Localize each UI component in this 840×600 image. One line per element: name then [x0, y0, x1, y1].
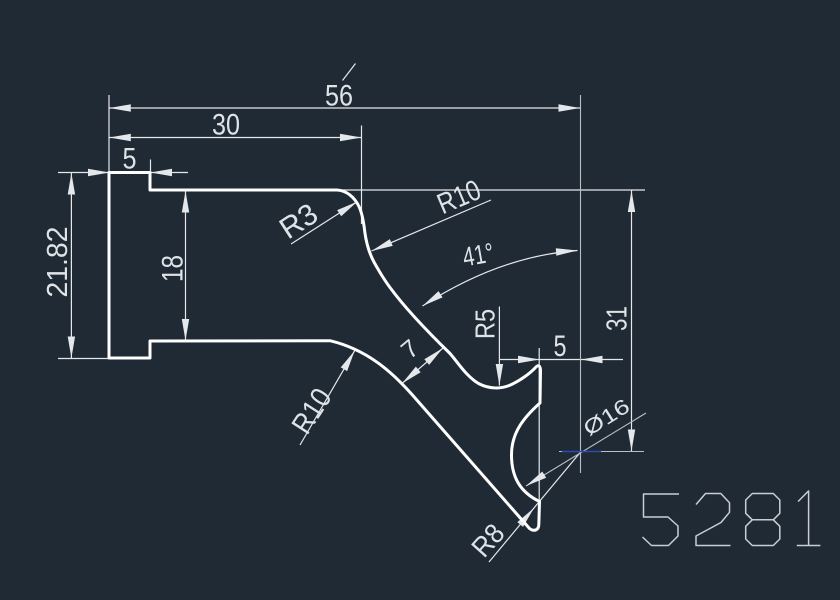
svg-text:5: 5 [554, 330, 567, 363]
svg-text:R8: R8 [465, 518, 510, 563]
svg-text:5: 5 [123, 143, 137, 176]
svg-text:41°: 41° [460, 237, 496, 272]
svg-text:7: 7 [396, 334, 425, 364]
svg-text:R10: R10 [433, 174, 486, 221]
svg-text:18: 18 [157, 255, 190, 282]
svg-text:Ø16: Ø16 [579, 395, 634, 441]
svg-text:56: 56 [325, 80, 353, 113]
svg-text:30: 30 [212, 109, 240, 142]
svg-text:21.82: 21.82 [42, 227, 74, 298]
svg-text:31: 31 [602, 306, 634, 331]
svg-text:R5: R5 [470, 309, 501, 339]
svg-text:R3: R3 [274, 197, 324, 246]
